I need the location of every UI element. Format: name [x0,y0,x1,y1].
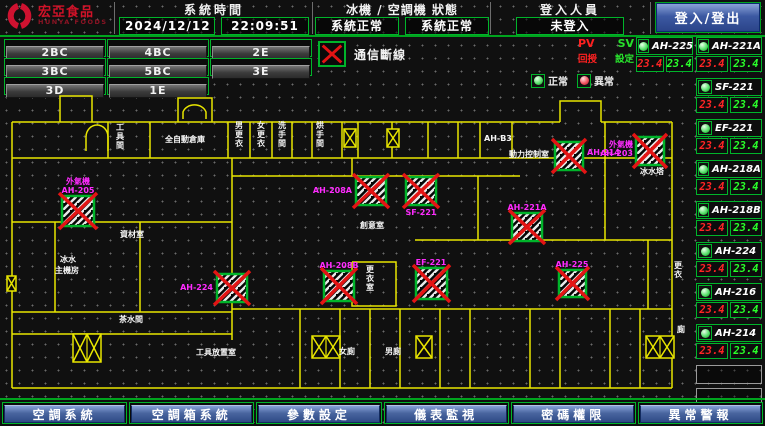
header-bar: 宏亞食品 HUNYA FOODS 系統時間 2024/12/12 22:09:5… [0,0,765,37]
unit-name-label: AH-221A [712,41,761,52]
system-date-value: 2024/12/12 [119,17,215,35]
device-label: AH-208A [313,186,353,195]
system-time-panel: 系統時間 2024/12/12 22:09:51 [116,0,312,36]
nav-button-參數設定[interactable]: 參數設定 [258,405,379,423]
stair-shaft-icon [416,336,432,358]
state-legend: 正常 異常 [531,73,614,88]
device-label: EF-221 [416,258,447,267]
floor-plan: 外氣機AH-205AH-208ASF-221AH-214外氣機AH-203AH-… [0,92,700,398]
unit-status-led-icon [698,326,712,340]
unit-name-label: EF-221 [715,123,753,134]
stairwell-arc [86,125,108,151]
unit-name-label: AH-218A [712,164,761,175]
device-AH-208B[interactable]: AH-208B [319,261,358,304]
unit-sv-value: 23.4 [730,261,762,277]
device-AH-208A[interactable]: AH-208A [313,174,389,208]
room-label: 資材室 [120,229,144,239]
unit-sv-value: 23.4 [730,302,762,318]
ahu-status-value: 系統正常 [405,17,489,35]
room-label: 女廁 [339,346,355,356]
floor-button-frame: 2BC [4,39,106,57]
normal-led-icon [531,74,545,88]
unit-AH-218B: AH-218B23.423.4 [696,201,762,236]
machine-status-label: 冰機 / 空調機 狀態 [314,0,490,17]
room-label: 烘手間 [316,120,324,148]
nav-button-frame: 空調系統 [2,402,127,424]
unit-sv-value: 23.4 [730,220,762,236]
stair-shaft-icon [387,129,399,147]
comm-loss-x-icon [318,41,346,67]
unit-status-led-icon [698,244,712,258]
pv-sub-label: 回授 [578,51,597,65]
unit-SF-221: SF-22123.423.4 [696,78,762,113]
unit-pv-value: 23.4 [696,138,728,154]
company-logo: 宏亞食品 HUNYA FOODS [4,3,108,29]
unit-name-label: AH-224 [715,246,756,257]
unit-status-led-icon [698,39,709,53]
room-label: 男更衣 [235,121,244,148]
device-label: SF-221 [406,208,437,217]
room-label: 冰水塔 [640,166,665,176]
abnormal-led-icon [577,74,591,88]
unit-name-button-AH-225[interactable]: AH-225 [636,37,693,55]
stair-shaft-icon [646,336,674,358]
stair-shaft-icon [73,334,101,362]
stair-shaft-icon [344,129,356,147]
floor-button-frame: 4BC [107,39,209,57]
logo-crescents-icon [4,3,34,29]
system-clock-value: 22:09:51 [221,17,309,35]
abnormal-label: 異常 [594,73,614,88]
header-divider [114,2,115,34]
unit-name-button-AH-218B[interactable]: AH-218B [696,201,762,219]
pv-label: PV [578,37,595,50]
featured-unit-block: AH-22523.423.4 [636,37,693,78]
device-label: AH-221A [507,203,547,212]
room-label: 工具間 [116,123,124,150]
unit-status-led-icon [638,39,649,53]
nav-button-frame: 空調箱系統 [129,402,254,424]
nav-button-frame: 異常警報 [638,402,763,424]
header-divider [490,2,491,34]
login-user-value: 未登入 [516,17,624,35]
unit-AH-214: AH-21423.423.4 [696,324,762,359]
nav-button-儀表監視[interactable]: 儀表監視 [386,405,507,423]
nav-button-異常警報[interactable]: 異常警報 [640,405,761,423]
unit-AH-224: AH-22423.423.4 [696,242,762,277]
stair-shaft-icon [312,336,340,358]
unit-pv-value: 23.4 [696,56,728,72]
device-AH-225[interactable]: AH-225 [556,260,589,300]
unit-status-led-icon [698,121,712,135]
device-label: AH-225 [556,260,589,269]
floor-button-frame: 3BC [4,58,106,76]
unit-sv-value: 23.4 [730,56,762,72]
unit-AH-221A: AH-221A23.423.4 [696,37,762,72]
unit-sv-value: 23.4 [666,56,694,72]
bottom-nav-bar: 空調系統空調箱系統參數設定儀表監視密碼權限異常警報 [0,398,765,426]
unit-sv-value: 23.4 [730,179,762,195]
normal-label: 正常 [548,73,568,88]
device-label: AH-203 [600,149,633,158]
unit-sv-value: 23.4 [730,138,762,154]
unit-EF-221: EF-22123.423.4 [696,119,762,154]
sv-label: SV [618,37,634,50]
room-label: 廁 [677,324,685,334]
unit-status-led-icon [698,203,709,217]
login-user-label: 登入人員 [492,0,648,17]
room-label: 工具放置室 [196,347,236,357]
room-label: 主機房 [55,265,79,275]
comm-loss-label: 通信斷線 [354,46,406,63]
floor-button-frame: 3E [210,58,312,76]
room-label: 動力控制室 [509,149,549,159]
nav-button-frame: 密碼權限 [511,402,636,424]
unit-sv-value: 23.4 [730,343,762,359]
unit-name-button-AH-224[interactable]: AH-224 [696,242,762,260]
comm-loss-legend: 通信斷線 [318,41,406,67]
unit-name-button-AH-218A[interactable]: AH-218A [696,160,762,178]
nav-button-frame: 儀表監視 [384,402,509,424]
unit-pv-value: 23.4 [696,302,728,318]
room-label: 冰水 [60,254,77,264]
header-divider [650,2,651,34]
chiller-status-value: 系統正常 [315,17,399,35]
floor-button-grid: 2BC4BC2E3BC5BC3E3D1E [4,39,312,95]
unit-pv-value: 23.4 [696,220,728,236]
device-label: 外氣機 [66,176,90,186]
unit-sv-value: 23.4 [730,97,762,113]
device-AH-203[interactable]: 外氣機AH-203 [600,134,667,168]
nav-button-frame: 參數設定 [256,402,381,424]
floor-button-frame: 2E [210,39,312,57]
room-label: AH-B3 [484,134,512,143]
room-label: 更衣 [674,260,683,279]
unit-name-label: AH-218B [712,205,761,216]
unit-status-led-icon [698,162,709,176]
room-label: 男廁 [385,346,401,356]
unit-pv-value: 23.4 [696,179,728,195]
unit-name-button-AH-214[interactable]: AH-214 [696,324,762,342]
login-logout-button[interactable]: 登入/登出 [656,3,760,32]
unit-name-label: AH-216 [715,287,756,298]
room-label: 茶水間 [118,314,143,324]
empty-unit-slot [696,365,762,384]
nav-button-空調箱系統[interactable]: 空調箱系統 [131,405,252,423]
unit-pv-value: 23.4 [636,56,664,72]
nav-button-空調系統[interactable]: 空調系統 [4,405,125,423]
device-AH-205[interactable]: 外氣機AH-205 [59,176,97,229]
device-SF-221[interactable]: SF-221 [403,174,439,217]
room-label: 創意室 [359,220,384,230]
stairwell-arc [183,105,206,119]
unit-name-label: AH-214 [715,328,756,339]
unit-name-button-EF-221[interactable]: EF-221 [696,119,762,137]
device-label: AH-224 [180,283,213,292]
device-label: AH-205 [62,186,95,195]
brand-name: 宏亞食品 [38,6,108,20]
unit-name-label: AH-225 [652,41,693,52]
unit-pv-value: 23.4 [696,343,728,359]
stair-shaft-icon [7,276,16,291]
device-AH-224[interactable]: AH-224 [180,271,250,305]
unit-AH-216: AH-21623.423.4 [696,283,762,318]
unit-name-label: SF-221 [715,82,754,93]
unit-AH-225: AH-22523.423.4 [636,37,693,72]
room-label: 女更衣 [257,120,266,148]
pv-sv-headers: PV SV 回授 設定 [578,37,634,65]
unit-list-column: AH-221A23.423.4SF-22123.423.4EF-22123.42… [696,37,762,411]
room-label: 全自動倉庫 [164,134,205,144]
unit-name-button-AH-216[interactable]: AH-216 [696,283,762,301]
unit-status-led-icon [698,285,712,299]
machine-status-panel: 冰機 / 空調機 狀態 系統正常 系統正常 [314,0,490,36]
room-label: 洗手間 [278,120,286,148]
unit-pv-value: 23.4 [696,97,728,113]
floor-button-frame: 5BC [107,58,209,76]
system-time-label: 系統時間 [116,0,312,17]
room-label: 更衣室 [366,264,375,292]
unit-status-led-icon [698,80,712,94]
unit-name-button-AH-221A[interactable]: AH-221A [696,37,762,55]
device-AH-221A[interactable]: AH-221A [507,203,547,244]
unit-pv-value: 23.4 [696,261,728,277]
floor-button-3e[interactable]: 3E [212,65,310,79]
header-divider [312,2,313,34]
nav-button-密碼權限[interactable]: 密碼權限 [513,405,634,423]
unit-AH-218A: AH-218A23.423.4 [696,160,762,195]
device-label: AH-208B [319,261,358,270]
brand-subtitle: HUNYA FOODS [38,19,108,26]
hmi-screen: 宏亞食品 HUNYA FOODS 系統時間 2024/12/12 22:09:5… [0,0,765,426]
device-EF-221[interactable]: EF-221 [413,258,450,302]
login-panel: 登入人員 未登入 [492,0,648,36]
device-label: 外氣機 [609,139,633,149]
unit-name-button-SF-221[interactable]: SF-221 [696,78,762,96]
plan-walls [12,96,672,388]
sv-sub-label: 設定 [615,51,634,65]
